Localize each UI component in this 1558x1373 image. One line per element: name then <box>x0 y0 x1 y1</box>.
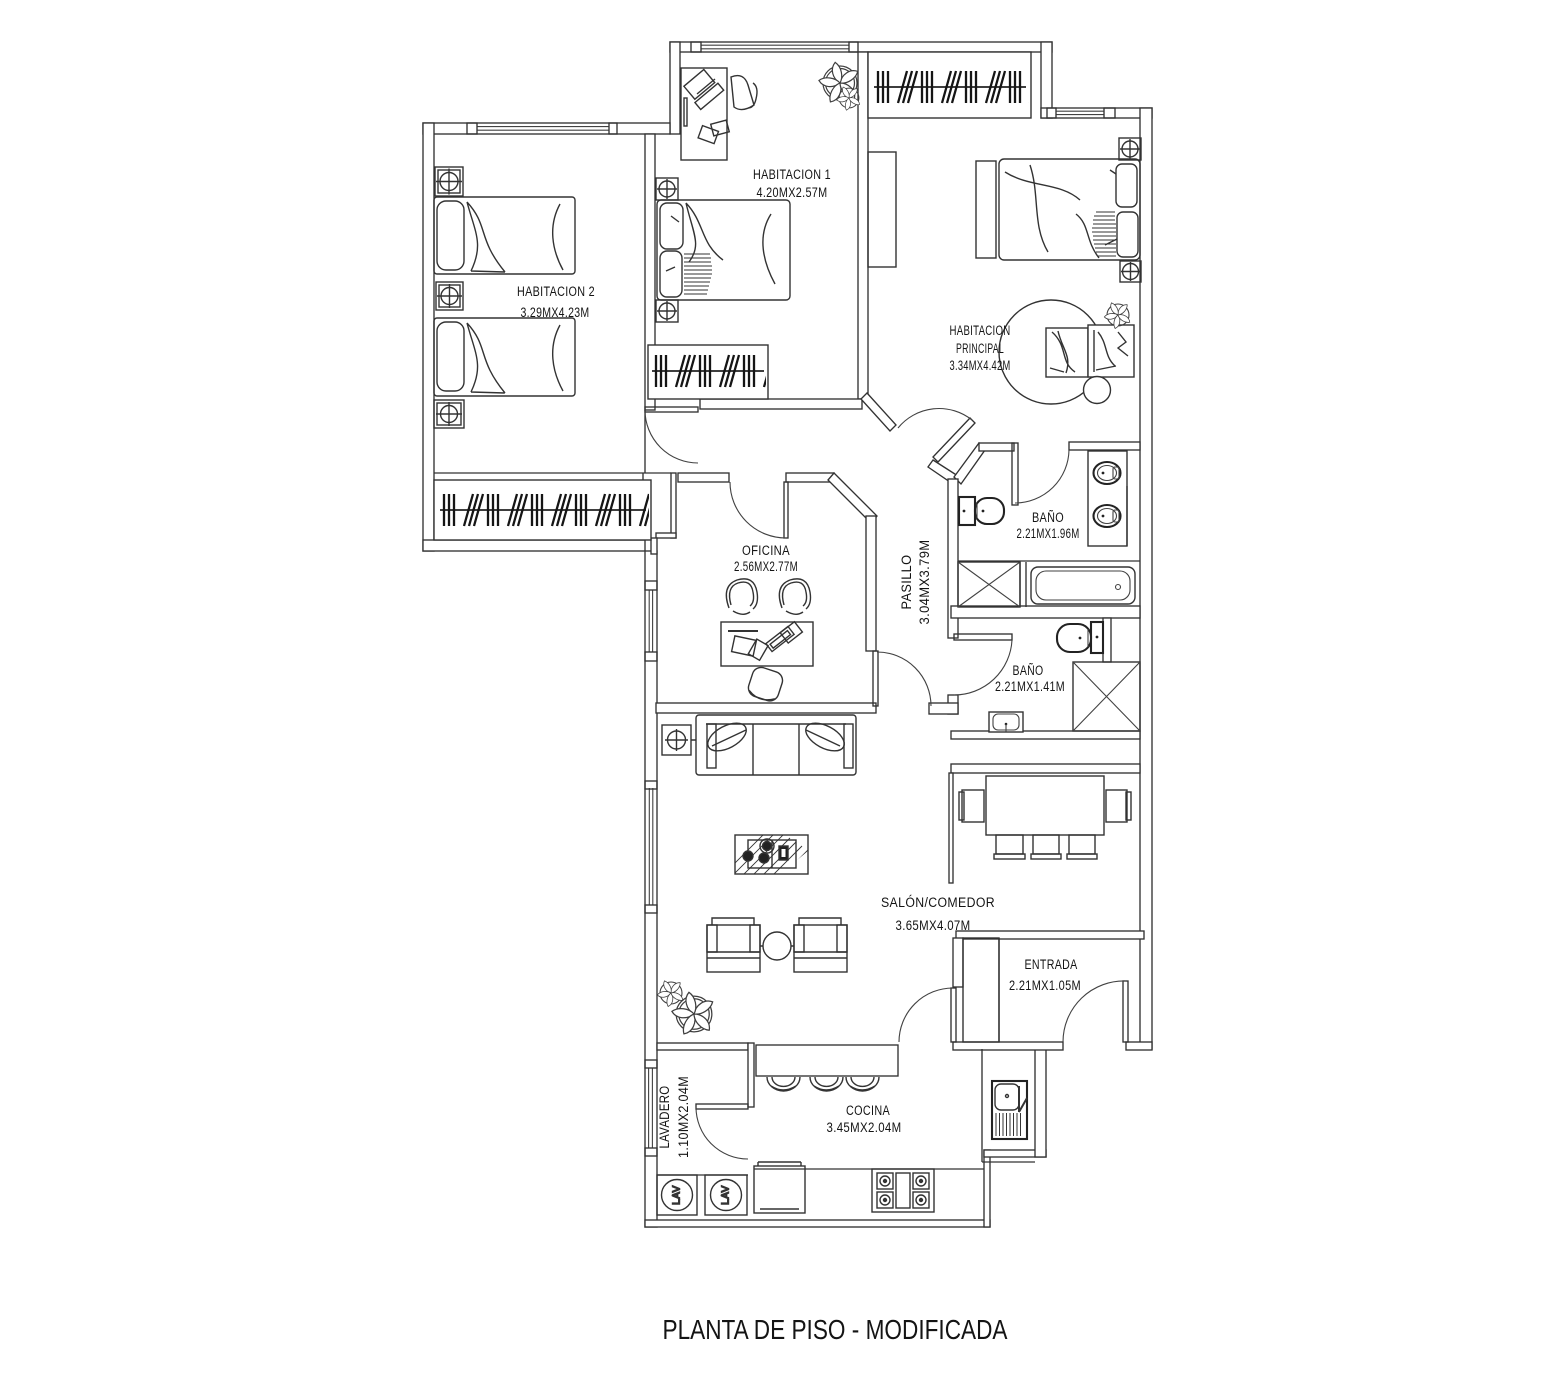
svg-text:3.04MX3.79M: 3.04MX3.79M <box>917 540 932 625</box>
svg-text:SALÓN/COMEDOR: SALÓN/COMEDOR <box>881 895 995 910</box>
svg-text:HABITACION: HABITACION <box>950 323 1011 338</box>
svg-text:1.10MX2.04M: 1.10MX2.04M <box>676 1076 691 1158</box>
svg-text:COCINA: COCINA <box>846 1103 890 1118</box>
svg-text:HABITACION 2: HABITACION 2 <box>517 284 595 299</box>
svg-text:3.29MX4.23M: 3.29MX4.23M <box>521 305 590 320</box>
svg-text:OFICINA: OFICINA <box>742 543 790 558</box>
svg-text:2.21MX1.96M: 2.21MX1.96M <box>1017 526 1080 541</box>
svg-text:PASILLO: PASILLO <box>899 555 914 610</box>
svg-text:3.65MX4.07M: 3.65MX4.07M <box>896 918 971 933</box>
svg-text:2.56MX2.77M: 2.56MX2.77M <box>734 559 798 574</box>
svg-text:2.21MX1.05M: 2.21MX1.05M <box>1009 978 1081 993</box>
svg-text:3.45MX2.04M: 3.45MX2.04M <box>827 1120 902 1135</box>
svg-text:LAV: LAV <box>672 1185 683 1205</box>
svg-text:PRINCIPAL: PRINCIPAL <box>956 341 1004 356</box>
svg-text:PLANTA DE PISO - MODIFICADA: PLANTA DE PISO - MODIFICADA <box>663 1314 1008 1345</box>
svg-text:BAÑO: BAÑO <box>1013 663 1044 678</box>
svg-text:BAÑO: BAÑO <box>1032 510 1064 525</box>
svg-text:4.20MX2.57M: 4.20MX2.57M <box>757 185 828 200</box>
svg-text:LAV: LAV <box>721 1185 732 1205</box>
svg-text:HABITACION 1: HABITACION 1 <box>753 167 831 182</box>
svg-text:ENTRADA: ENTRADA <box>1025 957 1078 972</box>
svg-text:3.34MX4.42M: 3.34MX4.42M <box>950 358 1011 373</box>
svg-text:LAVADERO: LAVADERO <box>657 1086 672 1149</box>
svg-text:2.21MX1.41M: 2.21MX1.41M <box>995 679 1065 694</box>
